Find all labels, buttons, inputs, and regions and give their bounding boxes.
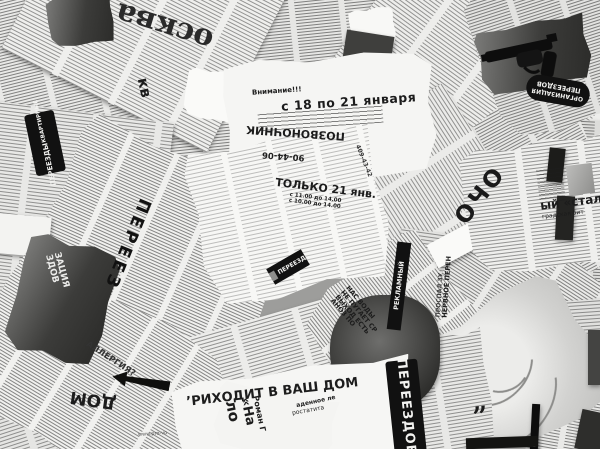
black-bar (466, 436, 538, 449)
dark-edge-strip (588, 330, 600, 385)
vertical-headlines-nervnoe: ПРОСПАЛ ЗУ НЕРВНОЕ ПЕРЕН (436, 245, 465, 318)
rotated-roman-block: Роман Г «На ло (222, 395, 266, 439)
newspaper-collage: осква кв КВАРТИРНЫЕ ПЕРЕЕЗДЫ Внимание!!!… (0, 0, 600, 449)
small-photo (566, 163, 595, 196)
strip-label: РЕКЛАМНЫЙ (392, 261, 406, 311)
phone-upside-down: 90-44-06 (262, 150, 305, 162)
big-quote-marks: ” (472, 403, 490, 431)
banner-label: ПЕРЕЕЗДОВ (393, 358, 418, 449)
headline-kv: кв (134, 77, 153, 99)
